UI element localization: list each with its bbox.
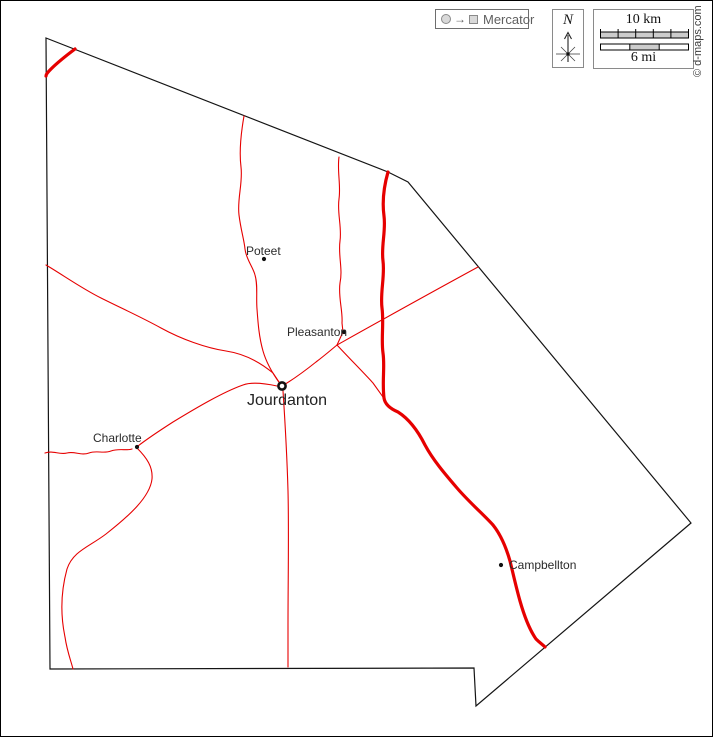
projection-legend: → Mercator — [435, 9, 529, 29]
circle-icon — [441, 14, 451, 24]
copyright-text: © d-maps.com — [692, 5, 704, 77]
compass-rose-icon — [553, 28, 583, 66]
north-label: N — [553, 13, 583, 28]
county-map-svg — [1, 1, 713, 737]
city-dot-charlotte — [135, 445, 139, 449]
map-canvas: Poteet Pleasanton Jourdanton Charlotte C… — [0, 0, 713, 737]
city-label-poteet: Poteet — [246, 244, 281, 258]
scale-legend: 10 km 6 mi — [593, 9, 694, 69]
county-boundary — [46, 38, 691, 706]
scale-km-label: 10 km — [594, 12, 693, 28]
city-label-pleasanton: Pleasanton — [287, 325, 347, 339]
county-seat-symbol-jourdanton — [278, 382, 285, 389]
city-label-jourdanton: Jourdanton — [247, 392, 327, 410]
scale-bars — [594, 29, 695, 52]
right-arrow-icon: → — [454, 13, 466, 25]
city-dot-campbellton — [499, 563, 503, 567]
city-label-charlotte: Charlotte — [93, 431, 142, 445]
scale-mi-label: 6 mi — [594, 50, 693, 66]
scale-bar-km — [601, 32, 689, 38]
compass: N — [552, 9, 584, 68]
square-icon — [469, 15, 478, 24]
city-label-campbellton: Campbellton — [509, 558, 576, 572]
projection-label: Mercator — [483, 12, 534, 27]
